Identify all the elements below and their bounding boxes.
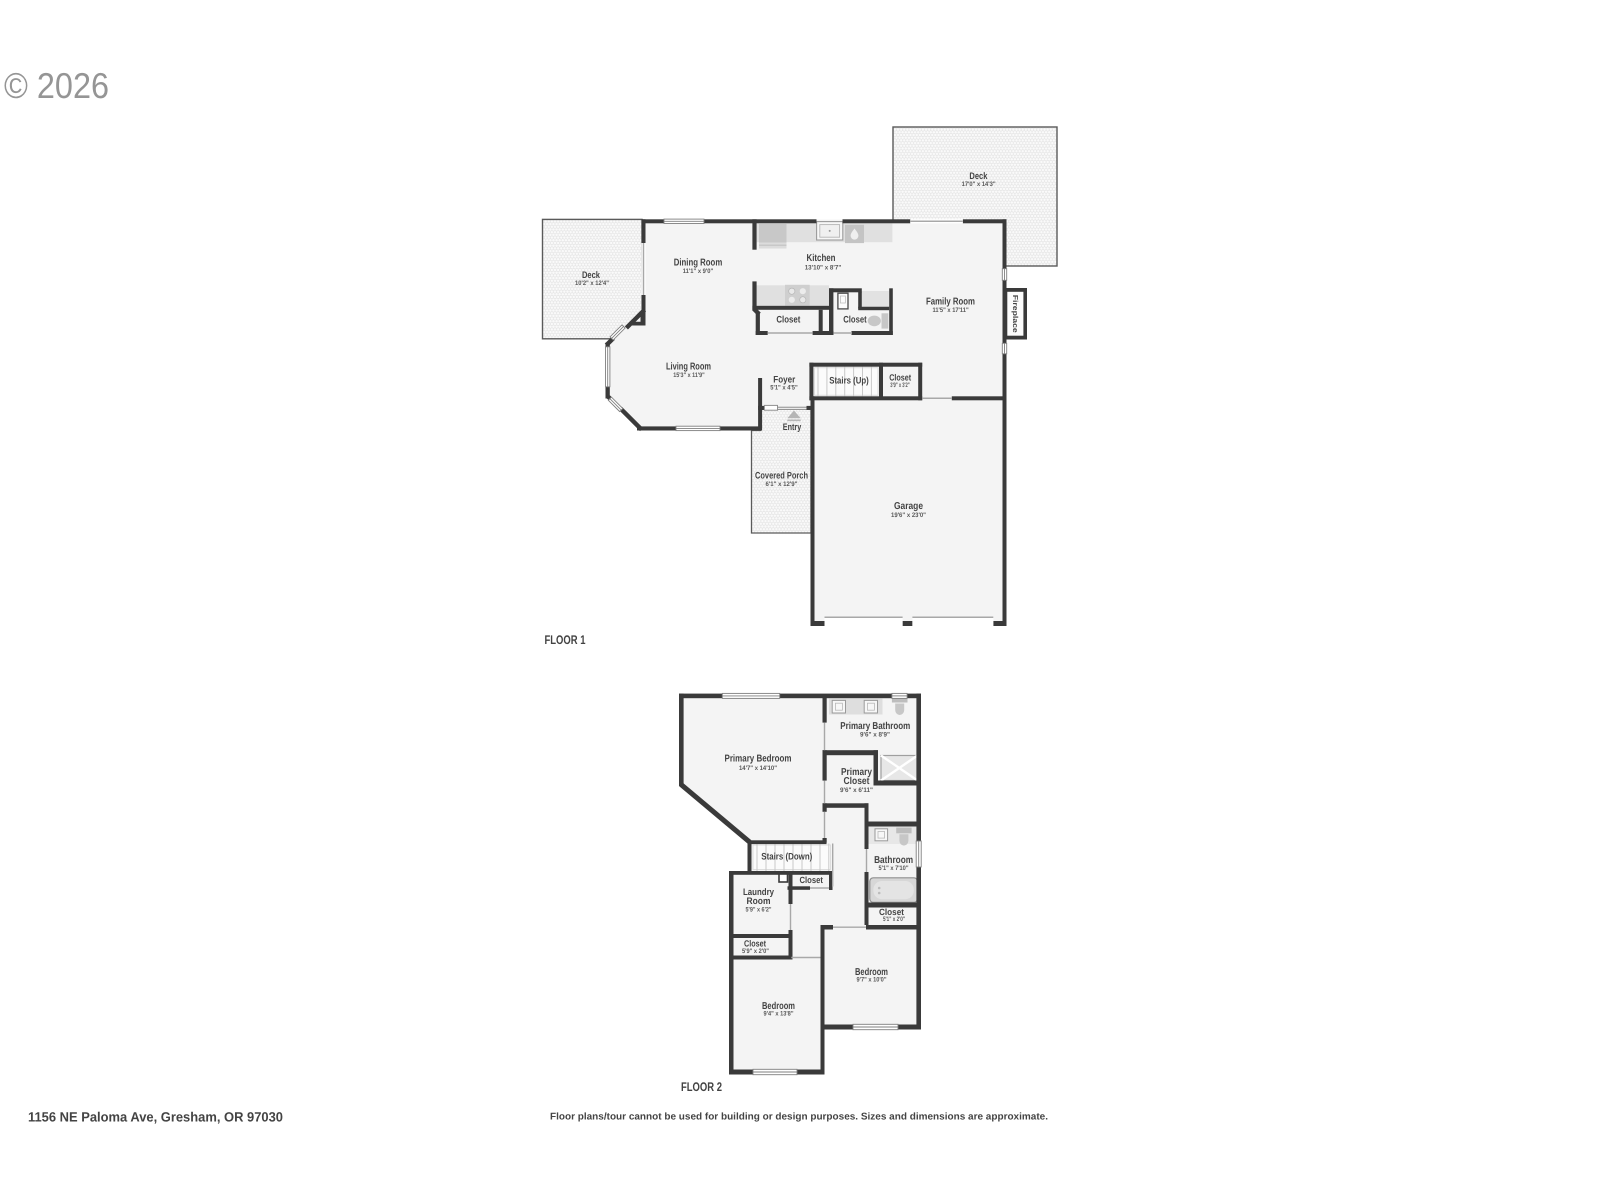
svg-text:5'1" x 4'5": 5'1" x 4'5" xyxy=(770,384,798,391)
svg-text:Primary Bedroom: Primary Bedroom xyxy=(725,754,792,765)
svg-text:6'1" x 12'9": 6'1" x 12'9" xyxy=(766,481,798,488)
svg-text:FLOOR 1: FLOOR 1 xyxy=(545,633,586,647)
svg-text:13'10" x 8'7": 13'10" x 8'7" xyxy=(805,265,842,272)
svg-text:Garage: Garage xyxy=(894,501,923,512)
svg-text:Stairs (Down): Stairs (Down) xyxy=(761,851,812,862)
svg-text:5'1" x 7'10": 5'1" x 7'10" xyxy=(879,865,909,872)
svg-text:10'2" x 12'4": 10'2" x 12'4" xyxy=(575,280,609,287)
svg-text:5'9" x 6'2": 5'9" x 6'2" xyxy=(746,907,772,914)
svg-text:5'1" x 2'0": 5'1" x 2'0" xyxy=(883,916,905,923)
svg-text:19'6" x 23'0": 19'6" x 23'0" xyxy=(891,512,926,519)
svg-text:Floor plans/tour cannot be use: Floor plans/tour cannot be used for buil… xyxy=(550,1111,1048,1122)
svg-text:Closet: Closet xyxy=(889,373,911,383)
svg-text:9'6" x 6'11": 9'6" x 6'11" xyxy=(840,787,873,794)
svg-text:Closet: Closet xyxy=(843,315,867,326)
svg-text:FLOOR 2: FLOOR 2 xyxy=(681,1080,722,1094)
svg-text:9'4" x 13'8": 9'4" x 13'8" xyxy=(764,1010,794,1017)
svg-text:9'7" x 10'0": 9'7" x 10'0" xyxy=(857,976,887,983)
svg-text:9'6" x 8'9": 9'6" x 8'9" xyxy=(860,732,890,739)
svg-text:1156 NE Paloma Ave, Gresham, O: 1156 NE Paloma Ave, Gresham, OR 97030 xyxy=(28,1109,283,1124)
svg-text:Closet: Closet xyxy=(799,875,823,885)
svg-text:Bathroom: Bathroom xyxy=(874,855,913,866)
svg-text:Closet: Closet xyxy=(776,315,801,326)
svg-text:Covered Porch: Covered Porch xyxy=(755,471,808,482)
svg-text:Fireplace: Fireplace xyxy=(1011,295,1020,333)
svg-text:Dining Room: Dining Room xyxy=(674,257,723,268)
svg-text:Room: Room xyxy=(747,896,771,907)
svg-text:3'9" x 3'2": 3'9" x 3'2" xyxy=(890,382,909,389)
svg-text:Stairs (Up): Stairs (Up) xyxy=(829,375,869,386)
svg-text:Primary Bathroom: Primary Bathroom xyxy=(840,721,910,732)
svg-text:11'1" x 9'0": 11'1" x 9'0" xyxy=(683,268,714,275)
svg-text:14'7" x 14'10": 14'7" x 14'10" xyxy=(739,765,777,772)
svg-text:Entry: Entry xyxy=(783,422,802,433)
svg-text:© 2026: © 2026 xyxy=(4,65,109,106)
svg-text:Closet: Closet xyxy=(844,776,871,787)
svg-text:Kitchen: Kitchen xyxy=(807,253,836,264)
svg-text:5'9" x 2'0": 5'9" x 2'0" xyxy=(742,948,769,955)
svg-text:17'0" x 14'3": 17'0" x 14'3" xyxy=(962,181,996,188)
svg-text:11'5" x 17'11": 11'5" x 17'11" xyxy=(933,307,969,314)
svg-text:15'3" x 11'9": 15'3" x 11'9" xyxy=(673,372,705,379)
svg-text:Closet: Closet xyxy=(744,939,766,949)
